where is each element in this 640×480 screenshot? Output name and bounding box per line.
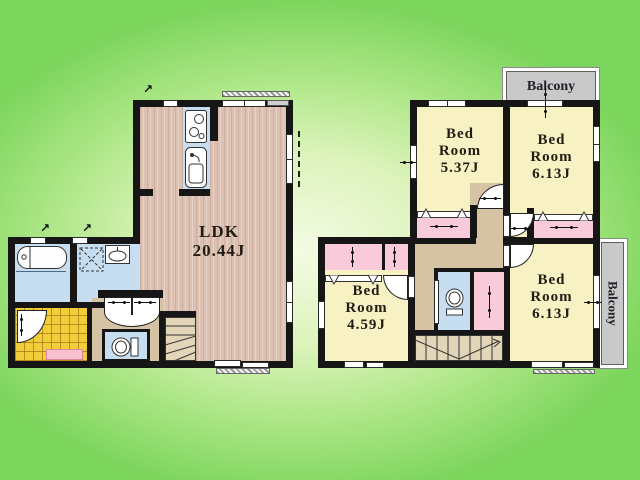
door-tick bbox=[479, 198, 501, 199]
window bbox=[344, 361, 364, 368]
closet-hanger-icon bbox=[534, 208, 593, 226]
window bbox=[286, 281, 293, 323]
ldk-name: LDK bbox=[199, 222, 239, 241]
window-sash bbox=[267, 100, 289, 106]
window bbox=[366, 362, 384, 368]
window bbox=[593, 126, 600, 162]
kitchen-sink-icon bbox=[185, 147, 207, 193]
window bbox=[222, 100, 266, 107]
window-tick bbox=[400, 162, 416, 163]
shutter-hatch bbox=[216, 368, 270, 374]
window bbox=[428, 100, 466, 107]
balcony-right: Balcony bbox=[597, 238, 628, 369]
window bbox=[531, 361, 563, 368]
stairs-floor2 bbox=[415, 335, 503, 366]
window bbox=[72, 237, 88, 244]
window bbox=[318, 301, 325, 329]
closet bbox=[385, 244, 408, 270]
window bbox=[30, 237, 46, 244]
washroom-sink-icon bbox=[105, 245, 130, 269]
room-label-bedroom-613-top: Bed Room 6.13J bbox=[510, 126, 593, 188]
room-label-bedroom-537: Bed Room 5.37J bbox=[417, 120, 503, 182]
room-line: Bed bbox=[446, 126, 474, 143]
door-tick bbox=[108, 302, 130, 303]
room-line: Bed bbox=[537, 132, 565, 149]
window bbox=[214, 360, 241, 367]
door-leaf bbox=[503, 245, 510, 267]
wall bbox=[179, 189, 210, 196]
room-line: Room bbox=[530, 289, 572, 306]
closet-hanger-icon bbox=[417, 205, 471, 223]
wall bbox=[408, 244, 415, 361]
toilet-icon bbox=[443, 288, 466, 322]
balcony-top-label: Balcony bbox=[527, 79, 575, 95]
stairs-floor1 bbox=[165, 317, 196, 366]
wall bbox=[210, 107, 218, 141]
room-line: Room bbox=[439, 143, 481, 160]
room-line: Bed bbox=[352, 283, 380, 300]
room-line: Room bbox=[345, 300, 387, 317]
closet-pole-tick bbox=[352, 247, 353, 267]
window bbox=[564, 362, 594, 368]
shutter-hatch bbox=[533, 369, 595, 374]
window bbox=[163, 100, 178, 107]
ldk-size: 20.44J bbox=[193, 241, 246, 260]
eave-dashline bbox=[298, 131, 300, 187]
room-size: 6.13J bbox=[532, 166, 571, 183]
door-tick bbox=[134, 302, 156, 303]
vent-arrow-icon: ↗ bbox=[143, 82, 153, 96]
wall bbox=[140, 189, 153, 196]
floor2-hallway bbox=[476, 238, 503, 245]
closet-pole-tick bbox=[394, 247, 395, 267]
washing-machine-icon bbox=[79, 247, 104, 277]
room-size: 4.59J bbox=[347, 317, 386, 334]
entrance-mat bbox=[46, 349, 83, 360]
door-tick bbox=[509, 228, 531, 229]
door-tick bbox=[21, 314, 22, 336]
wall bbox=[70, 244, 77, 302]
door-leaf bbox=[503, 215, 510, 237]
room-size: 5.37J bbox=[441, 160, 480, 177]
closet bbox=[325, 244, 382, 270]
room-size: 6.13J bbox=[532, 306, 571, 323]
vent-arrow-icon: ↗ bbox=[40, 221, 50, 235]
wall bbox=[87, 308, 92, 361]
toilet-door bbox=[434, 280, 439, 324]
balcony-door-tick bbox=[545, 88, 546, 118]
shutter-hatch bbox=[222, 91, 290, 97]
wall bbox=[470, 205, 477, 238]
bathtub-icon bbox=[17, 246, 67, 274]
hall-door-leaf bbox=[131, 297, 133, 315]
bathroom-divider bbox=[16, 271, 66, 272]
toilet-icon bbox=[110, 336, 140, 363]
closet-pole-tick bbox=[430, 226, 458, 227]
stove-icon bbox=[185, 110, 207, 148]
vent-arrow-icon: ↗ bbox=[82, 221, 92, 235]
balcony-right-label: Balcony bbox=[605, 281, 621, 326]
room-label-bedroom-459: Bed Room 4.59J bbox=[325, 277, 408, 339]
door-leaf bbox=[408, 276, 415, 298]
closet-pole-tick bbox=[489, 286, 490, 318]
room-label-bedroom-613-bottom: Bed Room 6.13J bbox=[510, 266, 593, 328]
room-line: Bed bbox=[537, 272, 565, 289]
window bbox=[286, 134, 293, 184]
room-label-ldk: LDK 20.44J bbox=[176, 219, 262, 263]
room-line: Room bbox=[530, 149, 572, 166]
floor-plan-canvas: Balcony Balcony bbox=[0, 0, 640, 480]
closet-pole-tick bbox=[550, 227, 578, 228]
